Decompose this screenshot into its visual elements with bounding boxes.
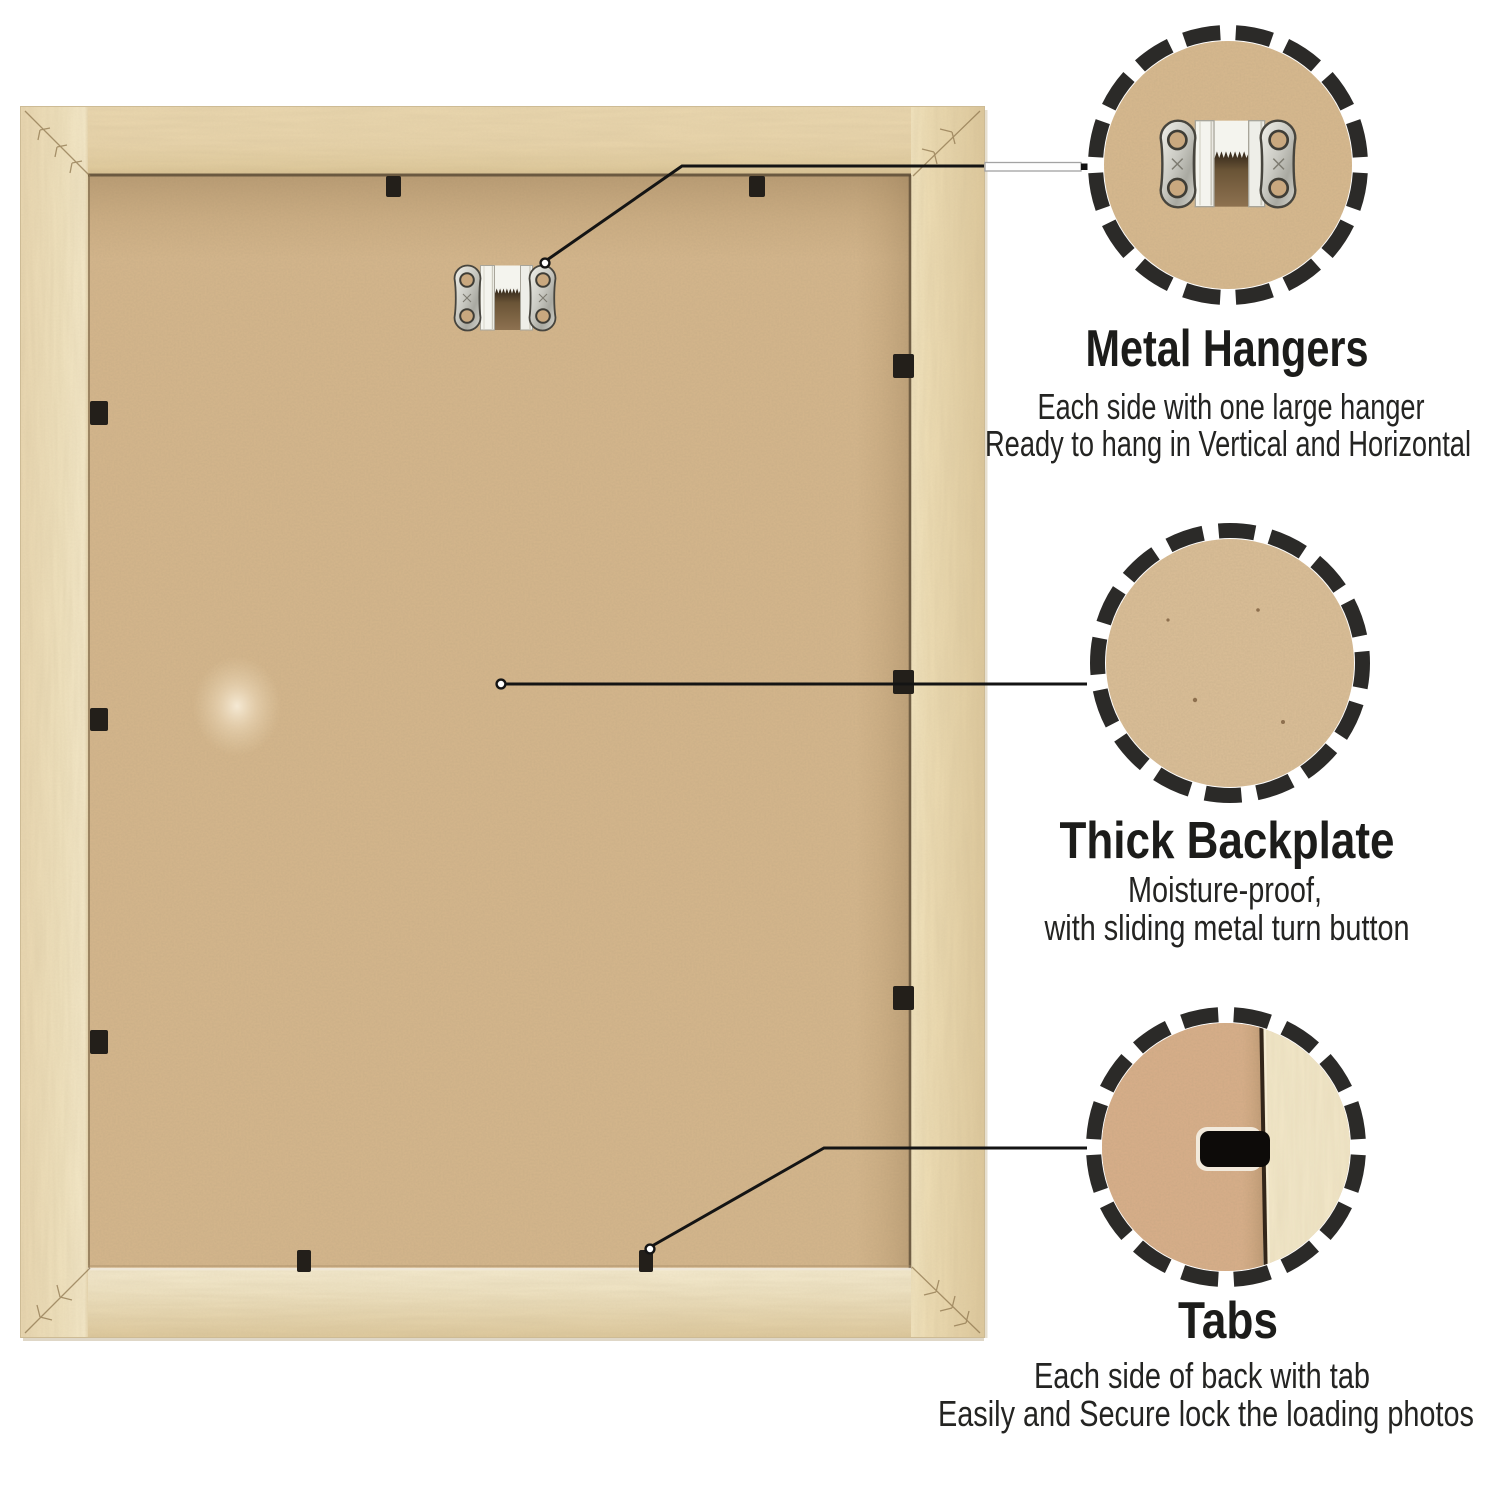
svg-text:Metal Hangers: Metal Hangers	[1086, 320, 1369, 378]
svg-text:Thick Backplate: Thick Backplate	[1060, 812, 1395, 870]
svg-text:Each side with one large hange: Each side with one large hanger	[1038, 386, 1425, 427]
svg-text:Tabs: Tabs	[1178, 1292, 1278, 1350]
svg-text:Each side of back with tab: Each side of back with tab	[1034, 1355, 1370, 1396]
svg-text:Ready to hang in Vertical and: Ready to hang in Vertical and Horizontal	[985, 423, 1471, 464]
svg-text:Easily and Secure lock the loa: Easily and Secure lock the loading photo…	[938, 1393, 1474, 1434]
svg-text:with sliding metal turn button: with sliding metal turn button	[1044, 907, 1410, 948]
svg-text:Moisture-proof,: Moisture-proof,	[1128, 869, 1322, 910]
